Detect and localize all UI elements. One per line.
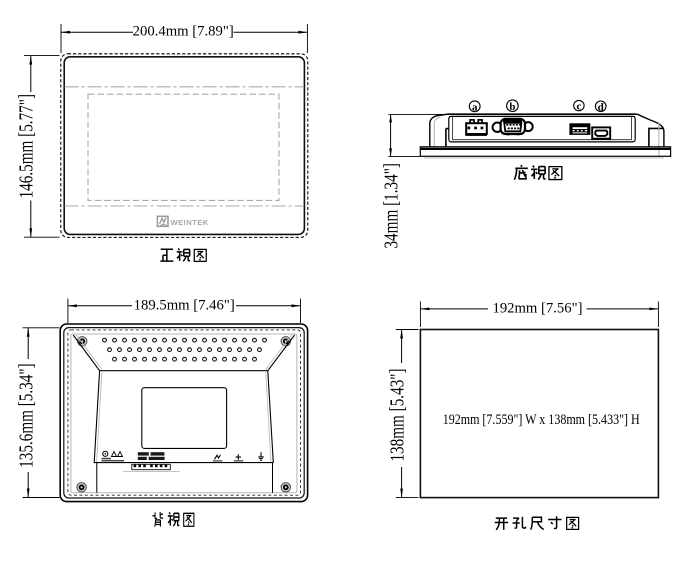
svg-text:146.5mm [5.77"]: 146.5mm [5.77"]	[15, 94, 37, 198]
svg-text:d: d	[598, 101, 604, 113]
svg-text:a: a	[472, 101, 478, 113]
svg-text:189.5mm [7.46"]: 189.5mm [7.46"]	[134, 298, 235, 314]
svg-text:b: b	[509, 101, 515, 113]
svg-text:135.6mm [5.34"]: 135.6mm [5.34"]	[15, 363, 37, 467]
svg-text:c: c	[576, 101, 581, 113]
svg-text:WEINTEK: WEINTEK	[171, 218, 209, 227]
svg-text:192mm [7.56"]: 192mm [7.56"]	[492, 301, 582, 317]
svg-text:200.4mm [7.89"]: 200.4mm [7.89"]	[133, 23, 234, 39]
svg-text:138mm [5.43"]: 138mm [5.43"]	[386, 368, 408, 461]
svg-text:34mm [1.34"]: 34mm [1.34"]	[380, 163, 402, 248]
svg-text:192mm [7.559"] W x 138mm [5.43: 192mm [7.559"] W x 138mm [5.433"] H	[443, 412, 640, 428]
